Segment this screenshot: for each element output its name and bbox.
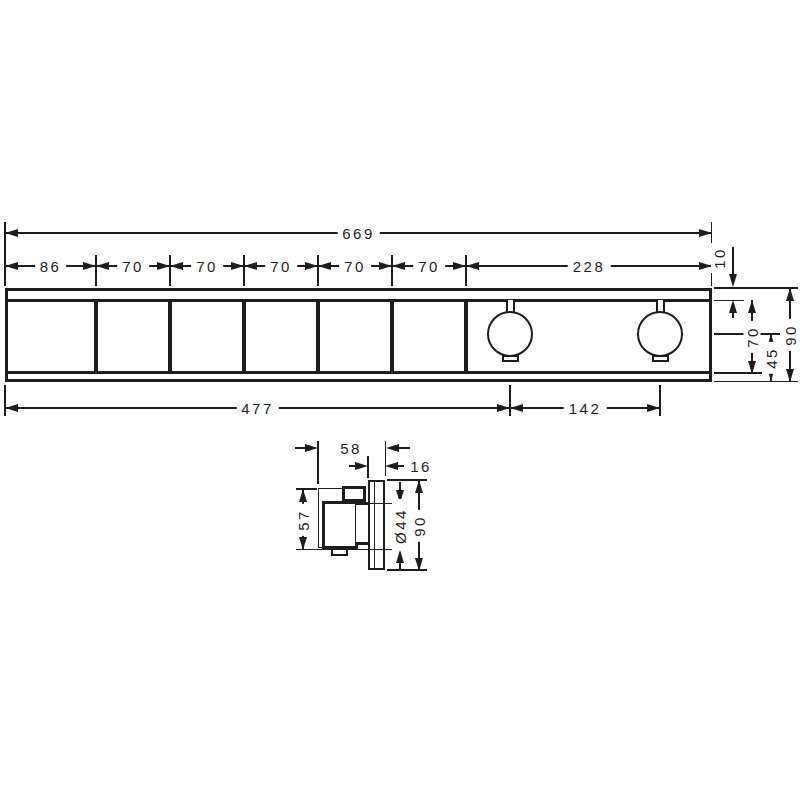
escutcheon-plate-side xyxy=(368,480,385,570)
dim-label: 45 xyxy=(763,342,780,374)
button-cell-divider xyxy=(168,300,172,372)
arrowhead-left xyxy=(466,262,479,270)
dim-label: 70 xyxy=(191,258,223,275)
handle-tab xyxy=(502,355,519,362)
knob-grip-side xyxy=(322,501,358,549)
plate-flange-line xyxy=(374,482,376,568)
dim-line xyxy=(399,562,400,569)
dim-left-to-handle: 477 xyxy=(5,400,510,416)
arrowhead-left xyxy=(510,404,523,412)
arrowhead-left xyxy=(96,262,109,270)
arrowhead-right xyxy=(453,262,466,270)
arrowhead-up xyxy=(748,300,756,313)
arrowhead-up xyxy=(299,489,307,502)
arrowhead-down xyxy=(748,361,756,374)
dim-handle-diameter: Ø44 xyxy=(392,499,408,553)
dim-label: 57 xyxy=(295,504,312,536)
dim-top-offset: 10 xyxy=(711,243,727,273)
dim-label: 90 xyxy=(782,319,799,351)
technical-drawing: 669 86 70 70 70 70 70 228 477 142 10 xyxy=(0,0,800,800)
dim-line xyxy=(732,247,733,275)
arrowhead-up xyxy=(729,300,737,313)
dim-segment: 86 xyxy=(5,258,96,274)
dim-side-height: 90 xyxy=(411,480,427,571)
arrowhead-right xyxy=(699,229,712,237)
knob-lever-step xyxy=(342,486,366,502)
handle-knob-2 xyxy=(637,311,683,357)
dim-label: 70 xyxy=(339,258,371,275)
arrowhead-left xyxy=(5,262,18,270)
button-cell-divider xyxy=(242,300,246,372)
handle-tab xyxy=(652,355,669,362)
dim-depth: 58 xyxy=(331,440,371,456)
arrowhead-up xyxy=(786,288,794,301)
arrowhead-right xyxy=(305,444,318,452)
arrowhead-left xyxy=(5,229,18,237)
button-cell-divider xyxy=(390,300,394,372)
arrowhead-right xyxy=(379,262,392,270)
dim-overall-width: 669 xyxy=(5,225,712,241)
dim-label: 70 xyxy=(413,258,445,275)
arrowhead-left xyxy=(318,262,331,270)
dim-line xyxy=(396,465,404,466)
arrowhead-down xyxy=(729,274,737,287)
dim-label: 70 xyxy=(117,258,149,275)
arrowhead-down xyxy=(786,369,794,382)
arrowhead-left xyxy=(392,262,405,270)
arrowhead-right xyxy=(231,262,244,270)
dim-segment: 70 xyxy=(392,258,466,274)
dim-segment: 228 xyxy=(466,258,712,274)
arrowhead-left xyxy=(5,404,18,412)
faceplate-inner-bottom-line xyxy=(8,371,709,374)
arrowhead-down xyxy=(415,558,423,571)
arrowhead-right xyxy=(305,262,318,270)
arrowhead-up xyxy=(415,480,423,493)
dim-segment: 70 xyxy=(244,258,318,274)
arrowhead-right xyxy=(497,404,510,412)
dim-overall-height: 90 xyxy=(782,288,798,382)
dim-segment: 70 xyxy=(170,258,244,274)
arrowhead-left xyxy=(170,262,183,270)
dim-segment: 70 xyxy=(318,258,392,274)
dim-segment: 70 xyxy=(96,258,170,274)
dim-label: 669 xyxy=(337,225,380,242)
arrowhead-right xyxy=(157,262,170,270)
dim-center-from-bottom: 45 xyxy=(763,334,779,381)
handle-knob-1 xyxy=(487,311,533,357)
arrowhead-right xyxy=(355,462,368,470)
dim-label: 86 xyxy=(35,258,67,275)
dim-label: 70 xyxy=(744,321,761,353)
button-cell-divider xyxy=(464,300,468,372)
dim-label: 90 xyxy=(411,510,428,542)
dim-inner-height: 70 xyxy=(744,300,760,374)
button-cell-divider xyxy=(94,300,98,372)
dim-handle-height: 57 xyxy=(295,489,311,550)
arrowhead-down xyxy=(299,537,307,550)
faceplate-inner-top-line xyxy=(8,299,709,302)
faceplate-front-view xyxy=(5,288,712,382)
arrowhead-left xyxy=(244,262,257,270)
arrowhead-right xyxy=(647,404,660,412)
dim-line xyxy=(732,313,733,318)
button-cell-divider xyxy=(316,300,320,372)
dim-label: 477 xyxy=(236,400,279,417)
dim-line xyxy=(397,447,410,448)
dim-label: 142 xyxy=(564,400,607,417)
dim-handle-spacing: 142 xyxy=(510,400,660,416)
dim-label: 228 xyxy=(568,258,611,275)
arrowhead-right xyxy=(83,262,96,270)
dim-label: 70 xyxy=(265,258,297,275)
dim-plate-depth: 16 xyxy=(404,458,438,474)
